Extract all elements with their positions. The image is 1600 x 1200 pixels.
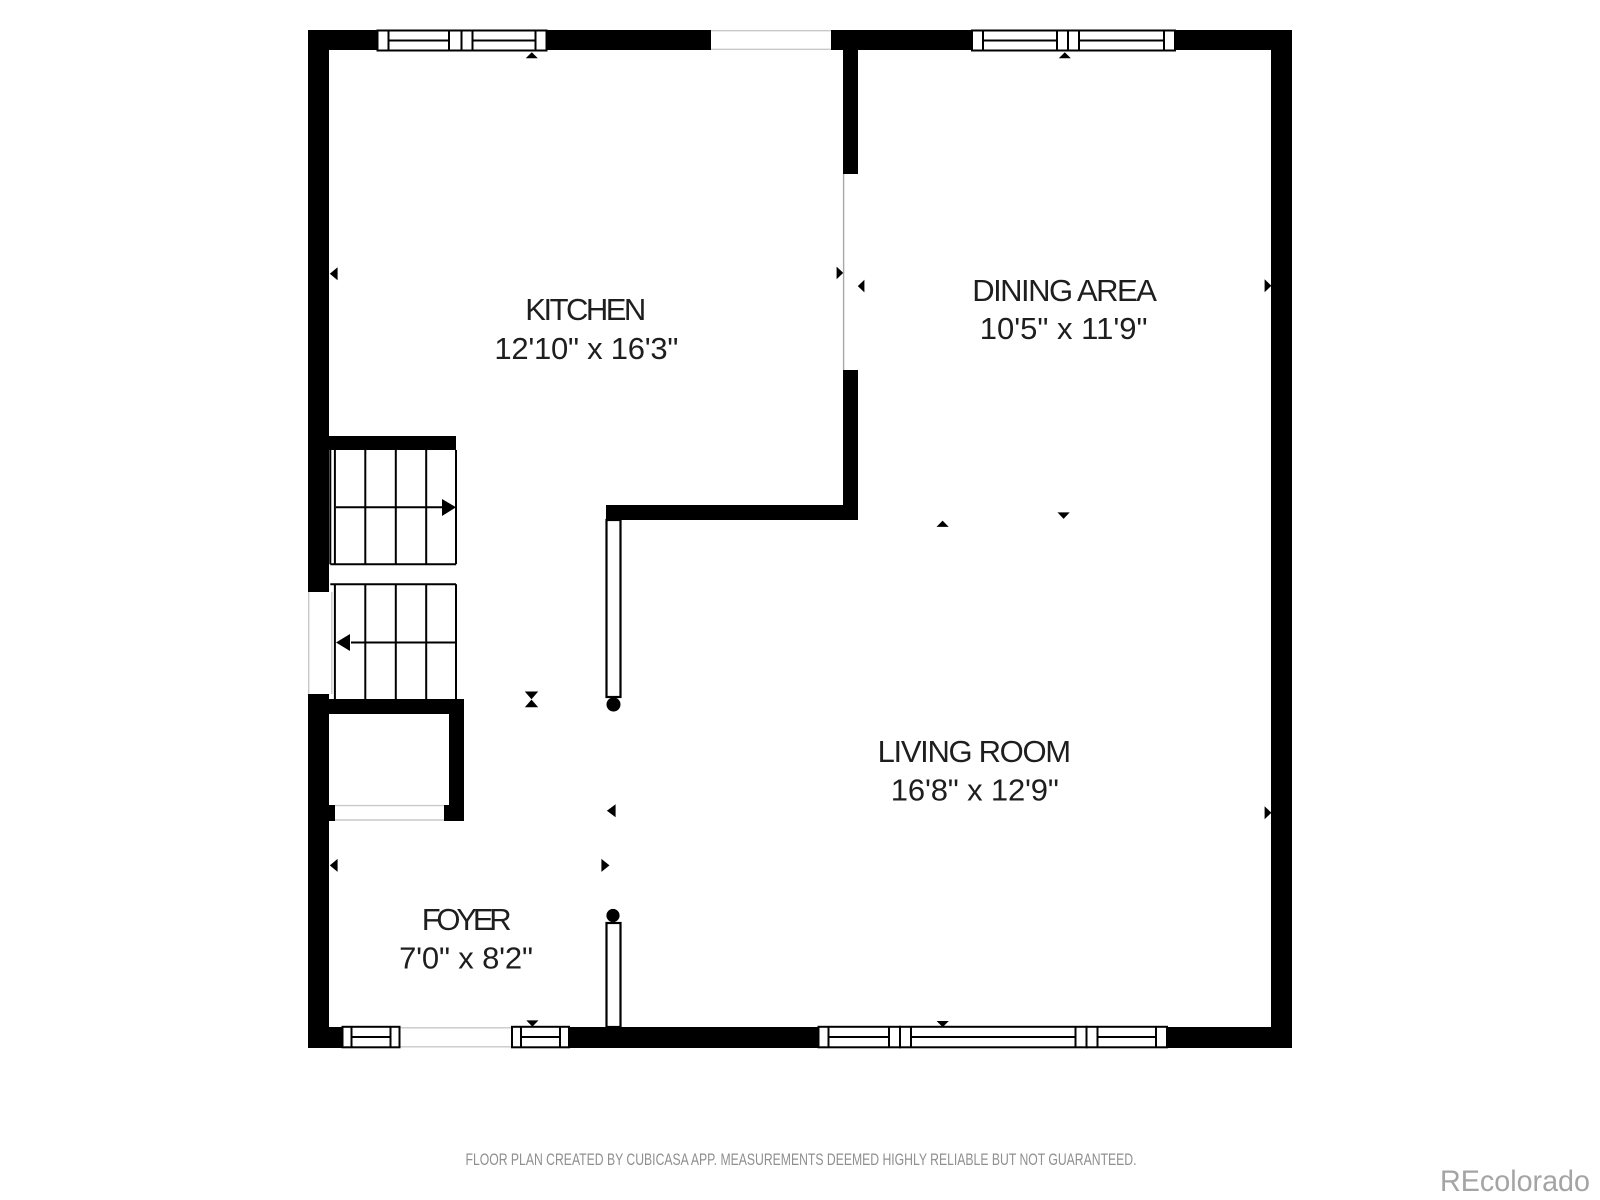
svg-text:LIVING ROOM: LIVING ROOM: [878, 734, 1072, 769]
svg-text:KITCHEN: KITCHEN: [525, 292, 646, 327]
svg-text:DINING AREA: DINING AREA: [972, 273, 1157, 308]
svg-text:FLOOR PLAN CREATED BY CUBICASA: FLOOR PLAN CREATED BY CUBICASA APP. MEAS…: [466, 1150, 1137, 1169]
svg-text:16'8" x 12'9": 16'8" x 12'9": [891, 773, 1059, 808]
svg-text:REcolorado: REcolorado: [1440, 1165, 1590, 1198]
svg-text:7'0" x 8'2": 7'0" x 8'2": [399, 941, 533, 976]
svg-text:FOYER: FOYER: [422, 902, 512, 937]
svg-text:12'10" x 16'3": 12'10" x 16'3": [494, 331, 678, 366]
svg-text:10'5" x 11'9": 10'5" x 11'9": [980, 311, 1148, 346]
